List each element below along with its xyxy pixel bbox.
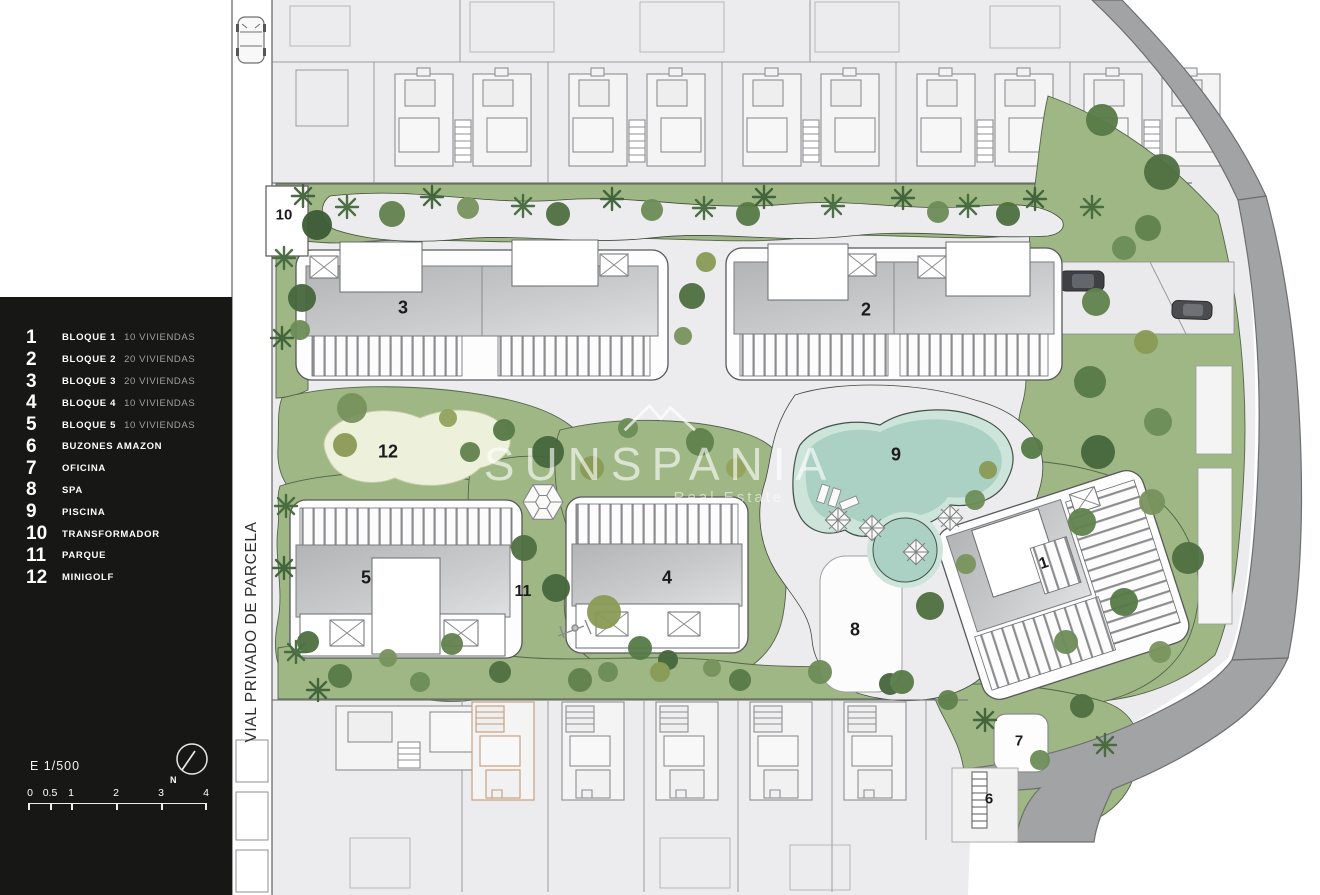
legend-item-label: BLOQUE 2 (62, 354, 116, 365)
building-5-shape (290, 500, 522, 658)
legend-item-number: 4 (26, 392, 62, 414)
legend-item: 5 BLOQUE 5 10 VIVIENDAS (0, 414, 232, 436)
legend-item: 9 PISCINA (0, 501, 232, 523)
legend-item-label: BLOQUE 1 (62, 332, 116, 343)
legend-item: 4 BLOQUE 4 10 VIVIENDAS (0, 392, 232, 414)
legend-item-number: 5 (26, 414, 62, 436)
legend-item-number: 11 (26, 545, 62, 567)
marker-spa: 8 (850, 620, 860, 641)
legend-item: 2 BLOQUE 2 20 VIVIENDAS (0, 349, 232, 371)
legend-item-detail: 10 VIVIENDAS (124, 332, 195, 343)
left-road-strip (232, 0, 272, 895)
scale-tick-label: 1 (68, 787, 74, 799)
legend-item: 1 BLOQUE 1 10 VIVIENDAS (0, 327, 232, 349)
building-4-shape (566, 497, 748, 653)
parasol-icon (937, 505, 962, 530)
legend-item-detail: 10 VIVIENDAS (124, 420, 195, 431)
scale-tick-label: 0.5 (43, 787, 58, 799)
building-3-shape (296, 240, 668, 380)
legend-item-number: 10 (26, 523, 62, 545)
legend-item-detail: 10 VIVIENDAS (124, 398, 195, 409)
legend-item-label: OFICINA (62, 463, 106, 474)
legend-item-number: 9 (26, 501, 62, 523)
parasol-icon (903, 539, 928, 564)
car-icon (1060, 271, 1104, 291)
site-plan-canvas: SUNSPANIA Real Estate VIAL PRIVADO DE PA… (0, 0, 1320, 895)
legend-item-label: BLOQUE 4 (62, 398, 116, 409)
legend-item-detail: 20 VIVIENDAS (124, 354, 195, 365)
scale-bar: 0 0.5 1 2 3 4 (28, 787, 212, 815)
legend-item: 6 BUZONES AMAZON (0, 436, 232, 458)
parasol-icon (825, 507, 850, 532)
legend-item-number: 7 (26, 458, 62, 480)
scale-text: E 1/500 (30, 759, 80, 773)
legend-item-number: 8 (26, 479, 62, 501)
legend-item: 10 TRANSFORMADOR (0, 523, 232, 545)
parked-car-top-icon (236, 17, 266, 63)
legend-item-number: 12 (26, 567, 62, 589)
legend-item-detail: 20 VIVIENDAS (124, 376, 195, 387)
scale-tick-label: 0 (27, 787, 33, 799)
legend-list: 1 BLOQUE 1 10 VIVIENDAS 2 BLOQUE 2 20 VI… (0, 327, 232, 589)
marker-piscina: 9 (891, 445, 901, 466)
legend-item-label: PARQUE (62, 550, 106, 561)
marker-building-4: 4 (662, 568, 672, 589)
marker-buzones: 6 (985, 791, 993, 808)
legend-item-number: 6 (26, 436, 62, 458)
marker-oficina: 7 (1015, 733, 1023, 750)
legend-item: 8 SPA (0, 480, 232, 502)
legend-item-label: TRANSFORMADOR (62, 529, 160, 540)
legend-item-label: BLOQUE 3 (62, 376, 116, 387)
legend-item: 3 BLOQUE 3 20 VIVIENDAS (0, 371, 232, 393)
legend-item-number: 2 (26, 349, 62, 371)
car-icon (1172, 300, 1213, 319)
legend-item-label: MINIGOLF (62, 572, 114, 583)
compass: N (168, 739, 214, 787)
legend-item: 12 MINIGOLF (0, 567, 232, 589)
scale-tick-label: 2 (113, 787, 119, 799)
legend-item-label: BUZONES AMAZON (62, 441, 162, 452)
marker-parque: 11 (515, 583, 532, 601)
marker-minigolf: 12 (378, 442, 398, 463)
building-2-shape (726, 242, 1062, 380)
legend-item: 7 OFICINA (0, 458, 232, 480)
marker-building-5: 5 (361, 568, 371, 589)
road-label: VIAL PRIVADO DE PARCELA (243, 521, 261, 742)
legend-item-number: 1 (26, 327, 62, 349)
legend-item-label: PISCINA (62, 507, 105, 518)
marker-building-3: 3 (398, 298, 408, 319)
legend-item-label: BLOQUE 5 (62, 420, 116, 431)
compass-north-label: N (170, 775, 177, 785)
parasol-icon (859, 515, 884, 540)
legend-item-number: 3 (26, 371, 62, 393)
marker-transformador: 10 (276, 207, 293, 224)
scale-tick-label: 3 (158, 787, 164, 799)
legend-panel: 1 BLOQUE 1 10 VIVIENDAS 2 BLOQUE 2 20 VI… (0, 297, 232, 895)
scale-tick-label: 4 (203, 787, 209, 799)
legend-item-label: SPA (62, 485, 83, 496)
marker-building-2: 2 (861, 300, 871, 321)
legend-item: 11 PARQUE (0, 545, 232, 567)
